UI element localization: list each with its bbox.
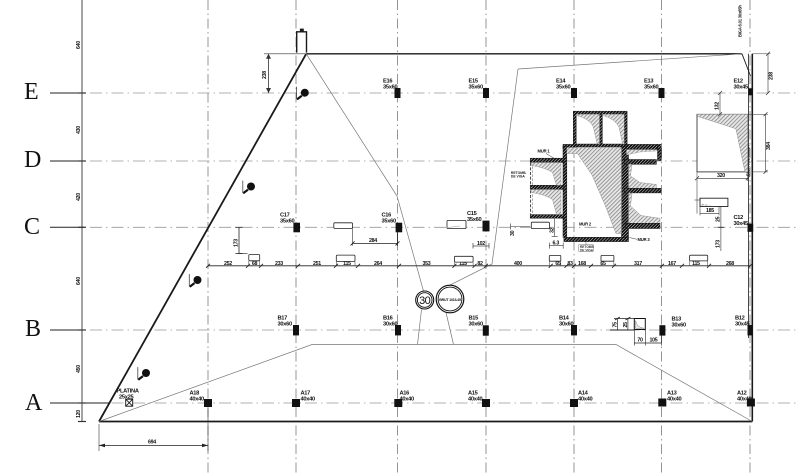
svg-text:40x40: 40x40	[301, 396, 315, 402]
svg-text:420: 420	[76, 193, 82, 201]
svg-text:264: 264	[374, 261, 382, 267]
svg-text:30x45: 30x45	[735, 322, 749, 328]
svg-text:252: 252	[224, 261, 232, 267]
svg-text:MUR 2: MUR 2	[579, 222, 592, 227]
svg-text:353: 353	[423, 261, 431, 267]
svg-text:25: 25	[623, 322, 629, 328]
svg-text:25x25: 25x25	[119, 394, 133, 400]
svg-text:25: 25	[716, 216, 722, 222]
svg-text:400: 400	[514, 261, 522, 267]
svg-text:68: 68	[252, 261, 258, 267]
svg-text:640: 640	[76, 41, 82, 49]
svg-text:450: 450	[76, 365, 82, 373]
svg-text:102: 102	[477, 241, 485, 247]
svg-text:E: E	[24, 79, 39, 105]
svg-text:173: 173	[234, 239, 240, 247]
svg-text:30: 30	[510, 230, 516, 236]
svg-text:35x60: 35x60	[556, 84, 570, 90]
svg-text:40x40: 40x40	[190, 396, 204, 402]
svg-text:120: 120	[76, 410, 82, 418]
svg-text:75: 75	[613, 322, 619, 328]
svg-text:82: 82	[477, 261, 483, 267]
svg-text:30x60: 30x60	[672, 323, 686, 329]
svg-text:DE VIGA: DE VIGA	[511, 175, 525, 179]
svg-text:105: 105	[650, 337, 658, 343]
svg-text:30x60: 30x60	[278, 322, 292, 328]
svg-text:35x60: 35x60	[280, 218, 294, 224]
svg-text:132: 132	[715, 102, 721, 110]
svg-text:233: 233	[275, 261, 283, 267]
svg-text:320: 320	[717, 173, 725, 179]
svg-text:BIGA 6.01 30x65h: BIGA 6.01 30x65h	[738, 5, 743, 37]
svg-text:168: 168	[578, 261, 586, 267]
svg-text:40x40: 40x40	[737, 396, 751, 402]
svg-text:DE VIGA: DE VIGA	[580, 248, 594, 252]
svg-text:70: 70	[637, 337, 643, 343]
svg-text:32: 32	[550, 227, 556, 233]
svg-text:40x40: 40x40	[400, 396, 414, 402]
svg-text:30x60: 30x60	[469, 322, 483, 328]
svg-text:83: 83	[567, 261, 573, 267]
svg-text:C: C	[24, 214, 40, 240]
svg-text:251: 251	[313, 261, 321, 267]
svg-text:MUR 3: MUR 3	[638, 237, 651, 242]
svg-text:40x40: 40x40	[578, 396, 592, 402]
svg-text:D: D	[24, 147, 41, 173]
svg-text:238: 238	[262, 71, 268, 79]
svg-text:BRUT 1016.45: BRUT 1016.45	[439, 298, 461, 302]
svg-text:30x60: 30x60	[383, 322, 397, 328]
svg-text:173: 173	[716, 240, 722, 248]
svg-text:A: A	[25, 390, 43, 416]
svg-text:40x40: 40x40	[468, 396, 482, 402]
svg-text:430: 430	[76, 126, 82, 134]
svg-text:35x60: 35x60	[383, 84, 397, 90]
svg-text:238: 238	[769, 72, 775, 80]
svg-text:MUR 1: MUR 1	[538, 149, 551, 154]
svg-text:115: 115	[692, 261, 700, 267]
svg-text:65: 65	[555, 261, 561, 267]
svg-text:284: 284	[369, 238, 377, 244]
svg-text:35x60: 35x60	[382, 218, 396, 224]
svg-text:167: 167	[668, 261, 676, 267]
svg-text:35x60: 35x60	[469, 84, 483, 90]
svg-text:30x60: 30x60	[559, 322, 573, 328]
svg-text:40x40: 40x40	[667, 396, 681, 402]
svg-text:B: B	[25, 316, 41, 342]
svg-text:30x45: 30x45	[734, 84, 748, 90]
svg-text:185: 185	[706, 208, 714, 214]
svg-text:317: 317	[634, 261, 642, 267]
svg-text:35x60: 35x60	[467, 217, 481, 223]
svg-text:30: 30	[419, 295, 431, 307]
svg-text:384: 384	[766, 142, 772, 150]
svg-text:640: 640	[76, 277, 82, 285]
svg-text:694: 694	[148, 439, 156, 445]
svg-text:6.3: 6.3	[553, 240, 560, 246]
svg-text:35x60: 35x60	[644, 84, 658, 90]
svg-text:30x45: 30x45	[734, 221, 748, 227]
svg-text:268: 268	[726, 261, 734, 267]
